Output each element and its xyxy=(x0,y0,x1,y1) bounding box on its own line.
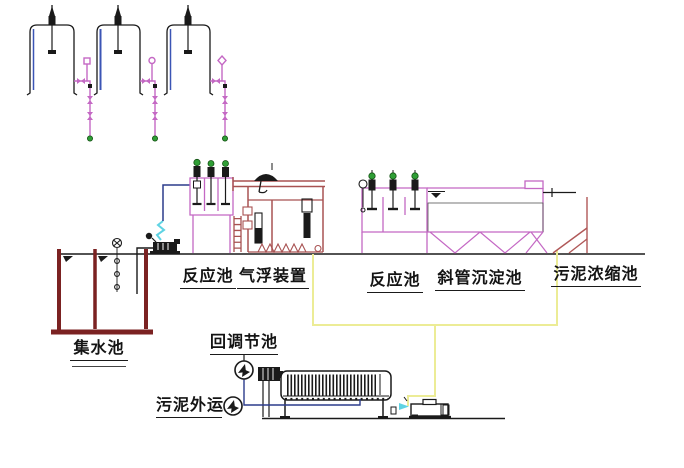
mixer-icon xyxy=(114,5,122,54)
diagram-drawing xyxy=(0,0,684,468)
mixer-icon xyxy=(221,161,230,205)
label-sludge-hauling: 污泥外运 xyxy=(156,396,222,418)
water-level-icon xyxy=(98,256,108,262)
saturator-column-icon xyxy=(255,213,262,243)
feed-pipe xyxy=(157,185,190,240)
mixer-icon xyxy=(388,170,398,209)
water-level-icon xyxy=(63,256,73,262)
water-level-icon xyxy=(431,193,441,198)
mixer-icon xyxy=(207,161,216,205)
pressure-vessel-icon xyxy=(302,199,312,238)
mixer-icon xyxy=(367,170,377,209)
process-flow-diagram: 反应池 气浮装置 反应池 斜管沉淀池 污泥浓缩池 集水池 回调节池 污泥外运 xyxy=(0,0,684,468)
dosing-tank-3 xyxy=(164,5,228,141)
mixer-icon xyxy=(193,159,202,204)
filter-press xyxy=(258,367,505,419)
level-gauge-icon xyxy=(113,239,122,293)
mixer-icon xyxy=(48,5,56,54)
level-gauge-icon xyxy=(359,180,367,212)
label-sedimentation-tank: 斜管沉淀池 xyxy=(435,269,525,291)
ladder-icon xyxy=(234,216,241,252)
lift-pump-icon xyxy=(146,233,180,254)
dosing-pipe xyxy=(210,56,228,141)
label-air-flotation-unit: 气浮装置 xyxy=(237,267,309,289)
dosing-pipe xyxy=(74,58,93,141)
air-flotation-unit xyxy=(233,163,325,252)
dosing-pipe xyxy=(140,58,158,142)
collecting-tank-underline2 xyxy=(72,366,126,367)
label-return-regulating-tank: 回调节池 xyxy=(210,333,278,355)
effluent-pipe xyxy=(543,188,578,197)
sedimentation-tank xyxy=(427,181,578,253)
inclined-tube-module xyxy=(428,203,543,232)
mixer-icon xyxy=(184,5,192,54)
motor-icon xyxy=(258,367,283,381)
skimmer-drive-icon xyxy=(254,163,278,193)
return-balloon-icon xyxy=(235,355,253,379)
label-reaction-tank-1: 反应池 xyxy=(180,267,236,289)
mixer-icon xyxy=(410,170,420,209)
sludge-pump-icon xyxy=(399,397,451,417)
label-collecting-tank: 集水池 xyxy=(70,339,128,361)
dosing-tank-2 xyxy=(94,5,158,141)
label-reaction-tank-2: 反应池 xyxy=(367,271,423,293)
reaction-tank-2 xyxy=(359,170,427,253)
collecting-tank xyxy=(51,239,153,333)
dosing-tank-1 xyxy=(27,5,93,141)
sludge-out-balloon-icon xyxy=(224,397,242,415)
thickening-tank xyxy=(553,197,587,253)
label-thickening-tank: 污泥浓缩池 xyxy=(551,265,641,287)
reaction-tank-1 xyxy=(190,159,233,253)
